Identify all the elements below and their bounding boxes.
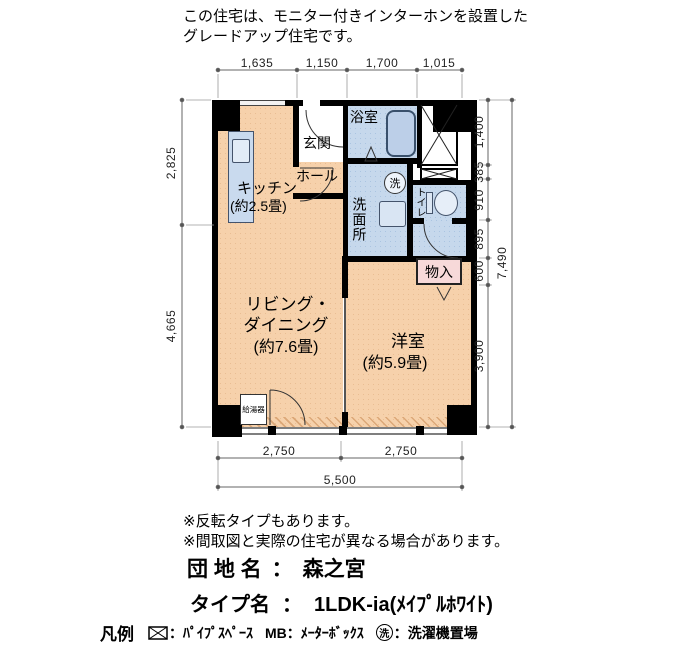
living-label-line1: リビング・ — [246, 296, 331, 315]
kitchen-size-label: (約2.5畳) — [230, 199, 287, 214]
dim-top-1: 1,635 — [241, 56, 274, 70]
western-size-label: (約5.9畳) — [363, 355, 428, 373]
genkan-floor — [293, 106, 345, 162]
dim-top-4: 1,015 — [423, 56, 456, 70]
dim-left-2: 4,665 — [164, 310, 178, 343]
dim-left-1: 2,825 — [164, 147, 178, 180]
corner-pillar-bottom-left — [212, 405, 242, 437]
dim-right-6: 3,900 — [472, 340, 486, 373]
dim-right-5: 600 — [472, 260, 486, 282]
western-label: 洋室 — [391, 333, 425, 352]
note-line1: ※反転タイプもあります。 — [183, 510, 359, 531]
washer-circle-icon: 洗 — [384, 172, 406, 194]
sliding-door-line — [344, 298, 346, 412]
wall-left — [212, 106, 218, 405]
water-heater-box: 給湯器 — [240, 394, 267, 425]
toilet-tank — [426, 192, 433, 214]
dim-bottom-1: 2,750 — [263, 444, 296, 458]
note-line2: ※間取図と実際の住宅が異なる場合があります。 — [183, 530, 509, 551]
living-label-line2: ダイニング — [244, 317, 329, 336]
wall-center-vertical — [343, 106, 348, 262]
dim-right-4: 895 — [472, 228, 486, 250]
bottom-windows — [242, 426, 447, 435]
corridor-floor — [407, 224, 466, 258]
divider-bottom-segment — [342, 412, 348, 427]
dim-top-3: 1,700 — [366, 56, 399, 70]
washer-legend-icon: 洗 — [376, 624, 393, 641]
header-line2: グレードアップ住宅です。 — [183, 25, 362, 46]
meter-box-legend-label: ：ﾒｰﾀｰﾎﾞｯｸｽ — [287, 623, 364, 643]
dim-top-2: 1,150 — [306, 56, 339, 70]
toilet-door-opening — [424, 218, 452, 224]
legend-row: 凡例 ：ﾊﾟｲﾌﾟｽﾍﾟｰｽ MB ：ﾒｰﾀｰﾎﾞｯｸｽ 洗 ：洗濯機置場 — [100, 620, 478, 645]
divider-top-segment — [342, 256, 348, 298]
toilet-label: トイレ — [414, 187, 425, 217]
storage-box: 物入 — [416, 258, 462, 285]
corner-pillar-top-left — [212, 100, 240, 131]
dim-right-2: 385 — [472, 161, 486, 183]
dim-bottom-2: 2,750 — [385, 444, 418, 458]
washer-legend-label: ：洗濯機置場 — [394, 623, 478, 643]
wall-genkan-left — [293, 106, 299, 167]
dim-right-1: 1,400 — [472, 116, 486, 149]
toilet-bowl — [434, 190, 458, 216]
kitchen-window — [240, 100, 285, 106]
storage-label: 物入 — [425, 262, 453, 282]
sanitary-label: 洗面所 — [351, 197, 366, 242]
type-name-row: タイプ名 ： 1LDK-ia(ﾒｲﾌﾟﾙﾎﾜｲﾄ) — [190, 588, 493, 617]
bathtub — [386, 110, 416, 157]
legend-title: 凡例 — [100, 620, 134, 645]
living-size-label: (約7.6畳) — [254, 339, 319, 357]
washbasin — [379, 201, 406, 227]
type-name-separator: ： — [282, 588, 302, 617]
bath-label: 浴室 — [350, 110, 378, 125]
pipe-space-legend-label: ：ﾊﾟｲﾌﾟｽﾍﾟｰｽ — [169, 623, 253, 643]
estate-name-separator: ： — [272, 553, 293, 583]
corner-pillar-bottom-right — [447, 405, 477, 435]
kitchen-sink — [232, 139, 250, 163]
water-heater-label: 給湯器 — [242, 404, 265, 415]
dim-right-total: 7,490 — [495, 247, 509, 280]
dim-right-3: 910 — [472, 189, 486, 211]
type-name-label: タイプ名 — [190, 588, 270, 617]
meter-box — [420, 168, 458, 180]
kitchen-label: キッチン — [237, 181, 297, 198]
entrance-opening — [303, 100, 320, 106]
pipe-space-legend-icon — [148, 626, 168, 640]
estate-name-label: 団 地 名 — [187, 553, 262, 583]
floorplan-page: この住宅は、モニター付きインターホンを設置した グレードアップ住宅です。 洗 物… — [0, 0, 700, 650]
wall-toilet-top — [413, 180, 466, 185]
wall-bath-ps — [417, 104, 422, 168]
wall-hall-bottom — [293, 193, 345, 199]
dim-bottom-total: 5,500 — [324, 473, 357, 487]
header-line1: この住宅は、モニター付きインターホンを設置した — [183, 5, 528, 26]
type-name-value: 1LDK-ia(ﾒｲﾌﾟﾙﾎﾜｲﾄ) — [314, 588, 493, 617]
washer-legend-symbol: 洗 — [379, 625, 389, 640]
estate-name-row: 団 地 名 ： 森之宮 — [187, 553, 366, 583]
wall-sanitary-toilet — [407, 164, 413, 258]
washer-symbol: 洗 — [390, 175, 401, 191]
meter-box-legend-symbol: MB — [265, 625, 287, 641]
estate-name-value: 森之宮 — [303, 553, 366, 583]
genkan-label: 玄関 — [303, 136, 331, 151]
hall-label: ホール — [296, 169, 338, 184]
corner-pillar-top-right — [433, 100, 477, 132]
